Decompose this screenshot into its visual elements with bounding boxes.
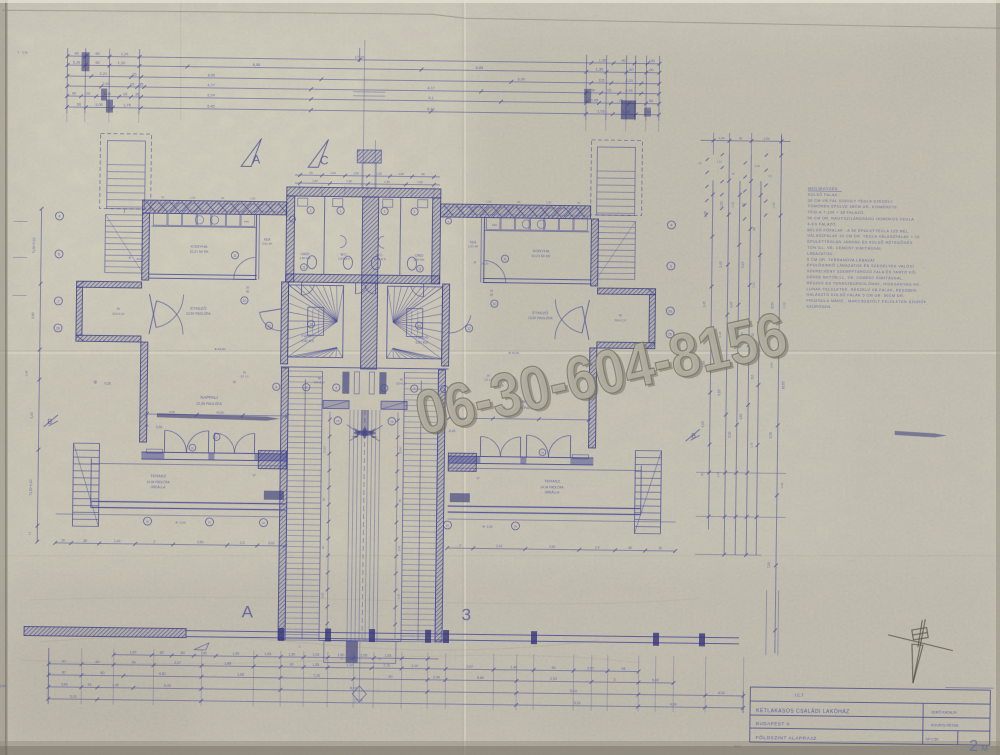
svg-text:5,24: 5,24 [207,93,214,97]
svg-text:46,05: 46,05 [216,410,224,414]
svg-text:4,17: 4,17 [427,86,434,90]
svg-text:1,35: 1,35 [112,683,119,687]
svg-text:4,80: 4,80 [739,414,743,420]
svg-text:⊙: ⊙ [215,435,218,439]
svg-text:11: 11 [233,254,237,258]
svg-text:13,50 PADLÓFA: 13,50 PADLÓFA [528,315,554,320]
svg-text:FÜRDŐ: FÜRDŐ [302,333,315,338]
svg-text:⊕: ⊕ [473,260,476,264]
svg-text:KÜLSŐ FALAK :: KÜLSŐ FALAK : [808,192,841,197]
svg-text:90: 90 [290,662,294,666]
svg-text:90: 90 [95,61,99,65]
svg-text:1,50: 1,50 [782,302,786,308]
svg-text:2,51 M²: 2,51 M² [468,244,478,248]
svg-text:10: 10 [492,302,496,306]
svg-text:210+2,10: 210+2,10 [112,312,124,316]
svg-text:18,65: 18,65 [781,381,785,389]
svg-text:2a: 2a [668,309,672,313]
svg-text:2,5: 2,5 [768,174,772,178]
svg-text:0,50: 0,50 [169,410,175,414]
svg-text:1,55: 1,55 [384,654,391,658]
svg-text:90: 90 [517,200,521,204]
svg-text:2,07: 2,07 [174,661,181,665]
svg-text:2,50: 2,50 [549,545,555,549]
svg-text:TÉGLA 7,100 + 38 FALAZÓ.: TÉGLA 7,100 + 38 FALAZÓ. [808,209,865,215]
svg-text:90: 90 [389,675,393,679]
svg-text:60: 60 [96,660,100,664]
svg-text:5,00: 5,00 [321,592,325,598]
svg-text:3,89: 3,89 [61,682,68,686]
svg-text:1,4: 1,4 [595,545,600,549]
svg-text:1: 1 [310,209,312,213]
svg-text:GREÁLLA: GREÁLLA [545,490,561,494]
svg-text:4,77: 4,77 [208,83,215,87]
svg-text:1,50: 1,50 [486,200,492,204]
svg-text:1,80 MK: 1,80 MK [299,256,310,260]
svg-text:15: 15 [132,72,136,76]
svg-text:14,04 PADLÓFA: 14,04 PADLÓFA [146,479,170,484]
svg-text:4: 4 [335,386,337,390]
svg-text:7,00: 7,00 [767,562,771,568]
svg-text:1,30: 1,30 [596,67,603,71]
svg-text:90: 90 [400,377,404,381]
svg-text:VIII: VIII [390,421,394,424]
svg-text:15: 15 [309,323,313,327]
svg-text:VII: VII [146,520,150,524]
svg-text:90: 90 [203,651,207,655]
svg-text:VIII: VIII [336,420,340,423]
svg-text:VI: VI [191,446,194,450]
svg-text:1,35: 1,35 [312,663,319,667]
svg-text:90: 90 [132,660,136,664]
svg-text:2,21: 2,21 [100,72,107,76]
svg-text:●●●: ●●● [492,224,497,227]
svg-text:22,98 PADLÓFA: 22,98 PADLÓFA [196,401,222,406]
svg-text:5,10: 5,10 [574,701,581,705]
svg-text:210+2,10: 210+2,10 [614,318,626,322]
svg-text:1,50: 1,50 [752,282,756,288]
svg-text:2,42: 2,42 [496,544,502,548]
svg-text:±0,00: ±0,00 [481,261,488,265]
svg-text:2,38: 2,38 [346,179,352,183]
svg-text:1,90: 1,90 [312,179,318,183]
svg-text:GREÁLLA: GREÁLLA [151,485,167,489]
svg-text:90: 90 [310,171,314,175]
svg-text:80: 80 [181,651,185,655]
svg-text:2,45: 2,45 [719,261,723,267]
svg-text:15: 15 [123,92,127,96]
svg-text:12: 12 [467,327,471,331]
svg-text:A: A [252,152,260,166]
svg-text:NAPPALI: NAPPALI [200,395,217,400]
svg-text:14,04 PADLÓFA: 14,04 PADLÓFA [540,484,564,489]
svg-text:2,0·1,0: 2,0·1,0 [240,374,249,378]
svg-text:3: 3 [461,605,471,624]
svg-text:1,50: 1,50 [337,653,344,657]
svg-text:80: 80 [628,546,632,550]
svg-text:4: 4 [58,214,60,218]
svg-text:50: 50 [95,52,99,56]
svg-text:2,54 M.K: 2,54 M.K [374,257,386,261]
svg-text:1,50: 1,50 [599,58,606,62]
svg-text:13,50 PADLÓFA: 13,50 PADLÓFA [186,311,212,316]
svg-text:1,50: 1,50 [546,200,552,204]
svg-text:125: 125 [648,59,654,63]
svg-text:2,38: 2,38 [384,180,390,184]
svg-text:17,10: 17,10 [354,698,363,702]
svg-text:1,38: 1,38 [755,164,761,168]
svg-text:1,90: 1,90 [417,180,423,184]
svg-text:1,00: 1,00 [398,172,404,176]
svg-text:4,05: 4,05 [701,421,705,427]
svg-text:C: C [320,153,329,167]
svg-text:1,45: 1,45 [702,301,706,307]
svg-text:VI: VI [541,451,544,455]
svg-text:B: B [691,433,696,440]
svg-text:1,20: 1,20 [121,52,128,56]
svg-text:1,90: 1,90 [129,650,136,654]
svg-text:1,88: 1,88 [224,662,231,666]
svg-text:A: A [242,602,254,621]
svg-text:KOVÁTS PÉTER: KOVÁTS PÉTER [931,722,959,727]
svg-text:2: 2 [153,540,155,544]
svg-text:605: 605 [734,744,742,749]
svg-text:2: 2 [57,299,59,303]
svg-text:5,80: 5,80 [31,312,35,318]
svg-text:1,00: 1,00 [330,171,336,175]
svg-text:7,25: 7,25 [313,674,320,678]
svg-text:2,50: 2,50 [197,540,203,544]
svg-text:30: 30 [658,546,662,550]
svg-text:5,60: 5,60 [477,676,484,680]
svg-text:1,50: 1,50 [376,171,382,175]
svg-text:●●●: ●●● [244,220,249,223]
svg-text:⊕ -2,05: ⊕ -2,05 [482,525,493,529]
svg-text:-0,50: -0,50 [104,382,112,386]
svg-text:10: 10 [242,299,246,303]
svg-text:2: 2 [969,738,978,755]
svg-text:5,45: 5,45 [164,684,171,688]
svg-text:1,10: 1,10 [731,202,735,208]
svg-text:4: 4 [670,223,672,227]
svg-text:4: 4 [383,387,385,391]
svg-text:M=1:50: M=1:50 [926,737,939,741]
svg-text:2,07: 2,07 [466,665,473,669]
svg-text:±0,00: ±0,00 [136,257,143,261]
svg-text:5: 5 [670,264,672,268]
svg-text:35: 35 [135,92,139,96]
svg-text:90: 90 [72,91,76,95]
svg-text:60: 60 [101,671,105,675]
svg-text:1,05: 1,05 [597,109,604,113]
svg-text:2,90: 2,90 [24,370,28,376]
svg-text:2,07: 2,07 [587,666,594,670]
svg-text:⊕ -2,05: ⊕ -2,05 [175,520,186,524]
svg-text:2,40: 2,40 [433,675,440,679]
svg-text:5,65: 5,65 [717,389,721,395]
svg-text:4,04: 4,04 [0,684,6,688]
svg-text:95: 95 [321,545,325,549]
svg-text:⊕: ⊕ [128,256,131,260]
svg-text:3: 3 [613,678,615,682]
svg-text:1: 1 [340,209,342,213]
svg-text:8,00: 8,00 [208,73,215,77]
svg-text:1,45: 1,45 [750,442,754,448]
svg-text:30: 30 [62,670,66,674]
svg-text:8,40: 8,40 [427,107,434,111]
svg-text:⊕ ±0,00: ⊕ ±0,00 [214,347,225,351]
svg-text:1,2: 1,2 [240,541,245,545]
svg-text:6,81: 6,81 [159,672,166,676]
svg-text:1,50: 1,50 [288,652,295,656]
svg-text:ÉTKEZŐ: ÉTKEZŐ [532,310,548,315]
svg-text:5,00: 5,00 [728,431,732,437]
svg-text:94: 94 [622,667,626,671]
svg-text:5,1: 5,1 [428,96,433,100]
svg-text:30: 30 [61,538,65,542]
svg-text:40: 40 [752,227,756,231]
svg-text:ÉTKEZŐ: ÉTKEZŐ [190,306,206,311]
svg-text:2b: 2b [56,326,60,330]
svg-text:11: 11 [418,267,422,271]
svg-text:5,00: 5,00 [780,482,784,488]
svg-text:KONYHA: KONYHA [533,248,550,253]
svg-text:10,21 M² KK: 10,21 M² KK [532,254,552,258]
svg-text:KONYHA: KONYHA [191,244,208,249]
svg-text:TERASZ: TERASZ [544,478,560,483]
svg-text:90: 90 [591,88,595,92]
svg-text:6,85: 6,85 [476,66,483,70]
svg-text:1,75: 1,75 [123,103,130,107]
svg-text:KÉTLAKASOS CSALÁDI LAKÓHÁZ: KÉTLAKASOS CSALÁDI LAKÓHÁZ [756,707,850,715]
svg-text:6,50: 6,50 [769,432,773,438]
svg-text:90: 90 [621,59,625,63]
svg-text:9,45: 9,45 [741,262,745,268]
svg-text:2,51 M²: 2,51 M² [262,242,272,246]
svg-text:TERASZ: TERASZ [150,473,166,478]
svg-text:77: 77 [28,532,32,536]
svg-text:90: 90 [62,659,66,663]
svg-text:50: 50 [77,103,81,107]
svg-text:1,50: 1,50 [190,196,196,200]
svg-text:1,40: 1,40 [114,539,120,543]
svg-text:15: 15 [130,82,134,86]
svg-text:1,00: 1,00 [719,136,725,140]
svg-text:15: 15 [417,324,421,328]
svg-text:4,04: 4,04 [718,691,725,695]
svg-text:50: 50 [739,136,743,140]
svg-text:90: 90 [619,313,623,317]
svg-text:115: 115 [598,78,604,82]
svg-text:VERŐ KATALIN: VERŐ KATALIN [931,709,957,714]
svg-text:80: 80 [160,651,164,655]
svg-text:35: 35 [139,82,143,86]
svg-text:5: 5 [58,252,60,256]
svg-text:50: 50 [649,99,653,103]
svg-text:1,50: 1,50 [764,137,770,141]
svg-text:5,60 M.K: 5,60 M.K [301,339,315,343]
svg-text:5,35: 5,35 [73,61,80,65]
svg-text:5,005: 5,005 [398,446,402,453]
svg-text:90: 90 [552,666,556,670]
svg-text:LÁBAZATOK :: LÁBAZATOK : [807,252,835,256]
svg-text:1,10: 1,10 [346,663,353,667]
svg-text:1,05: 1,05 [360,653,367,657]
svg-text:BUDAPEST II: BUDAPEST II [756,721,790,726]
svg-text:5,00: 5,00 [397,593,401,599]
svg-text:1,00: 1,00 [772,202,776,208]
svg-text:2,03: 2,03 [268,541,274,545]
svg-text:90: 90 [221,196,225,200]
svg-text:2: 2 [459,544,461,548]
svg-text:6,00: 6,00 [518,77,525,81]
svg-text:1,20: 1,20 [118,61,125,65]
svg-text:1,10: 1,10 [411,664,418,668]
svg-text:1,50: 1,50 [353,171,359,175]
svg-text:6,55: 6,55 [253,63,260,67]
svg-text:11: 11 [503,257,507,261]
svg-text:4-ES FALAZÓ.: 4-ES FALAZÓ. [807,221,837,226]
svg-text:VII: VII [514,524,518,528]
svg-text:90: 90 [117,307,121,311]
svg-text:IX: IX [262,521,265,525]
svg-text:1: 1 [384,210,386,214]
svg-text:B: B [47,419,52,426]
svg-text:⊕: ⊕ [93,379,97,384]
svg-text:3,40: 3,40 [30,412,34,418]
svg-text:90: 90 [74,52,78,56]
svg-text:95: 95 [700,472,704,476]
svg-text:1,10: 1,10 [717,160,723,164]
svg-text:⊕: ⊕ [233,379,236,384]
svg-text:60: 60 [490,293,494,297]
svg-text:1,05: 1,05 [312,653,319,657]
svg-text:11: 11 [302,266,306,270]
svg-text:5,03: 5,03 [70,695,77,699]
svg-text:74,50+5,10: 74,50+5,10 [32,237,36,253]
svg-text:M: M [981,744,988,753]
svg-text:50: 50 [629,68,633,72]
svg-text:60: 60 [246,289,250,293]
svg-text:2,54 M.K: 2,54 M.K [338,257,350,261]
svg-text:1,80 MK: 1,80 MK [413,258,424,262]
svg-text:90: 90 [421,172,425,176]
svg-text:3,55: 3,55 [397,545,401,551]
svg-text:29: 29 [86,92,90,96]
svg-text:15: 15 [607,88,611,92]
svg-text:90: 90 [322,497,326,501]
svg-text:1,50: 1,50 [250,196,256,200]
svg-text:2,03: 2,03 [550,677,557,681]
svg-text:1: 1 [414,210,416,214]
svg-text:IX: IX [208,520,211,524]
svg-text:1,03: 1,03 [720,201,724,207]
svg-text:5,45: 5,45 [207,104,214,108]
svg-text:5,005: 5,005 [322,445,326,452]
svg-text:-0,50: -0,50 [155,425,163,429]
svg-text:5 · 3,90: 5 · 3,90 [18,50,29,54]
svg-text:1,55: 1,55 [237,673,244,677]
svg-text:80: 80 [83,539,87,543]
svg-text:15: 15 [87,683,91,687]
svg-text:1,90: 1,90 [232,652,239,656]
svg-text:90: 90 [398,498,402,502]
svg-text:1,40: 1,40 [510,665,517,669]
svg-text:7,70: 7,70 [383,664,390,668]
svg-text:10,21 M² KK: 10,21 M² KK [190,250,210,254]
svg-text:5,60 M.K: 5,60 M.K [415,341,429,345]
svg-text:1,55: 1,55 [264,652,271,656]
svg-text:IX: IX [446,524,449,528]
svg-text:90: 90 [161,195,165,199]
svg-text:74,50+5,10: 74,50+5,10 [29,479,33,495]
svg-text:8: 8 [275,385,277,389]
svg-text:9,45: 9,45 [729,301,733,307]
svg-text:90: 90 [577,201,581,205]
svg-text:MEGJEGYZÉS: MEGJEGYZÉS [808,186,838,191]
svg-text:FÜRDŐ: FÜRDŐ [416,335,429,340]
svg-text:⊕ ±0,00: ⊕ ±0,00 [508,351,519,355]
svg-text:SZÚRÖSEN.: SZÚRÖSEN. [806,304,832,309]
svg-text:90: 90 [649,68,653,72]
svg-text:I.C.T: I.C.T [795,693,805,698]
svg-text:△: △ [299,644,302,648]
svg-text:1,05: 1,05 [95,103,102,107]
